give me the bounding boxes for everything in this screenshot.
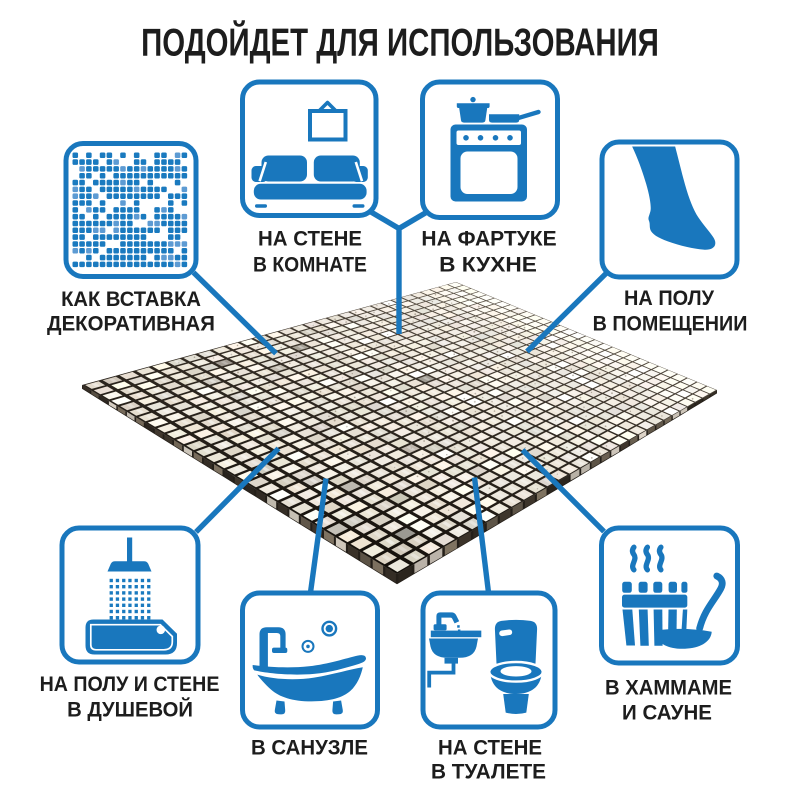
svg-text:НА СТЕНЕ: НА СТЕНЕ: [438, 736, 542, 759]
svg-text:ПОДОЙДЕТ ДЛЯ ИСПОЛЬЗОВАНИЯ: ПОДОЙДЕТ ДЛЯ ИСПОЛЬЗОВАНИЯ: [141, 19, 659, 64]
svg-text:В ХАММАМЕ: В ХАММАМЕ: [605, 676, 732, 699]
svg-text:ДЕКОРАТИВНАЯ: ДЕКОРАТИВНАЯ: [47, 312, 215, 335]
svg-text:В САНУЗЛЕ: В САНУЗЛЕ: [251, 736, 368, 759]
svg-text:В ТУАЛЕТЕ: В ТУАЛЕТЕ: [431, 760, 546, 783]
svg-text:В ДУШЕВОЙ: В ДУШЕВОЙ: [67, 697, 193, 721]
svg-text:В ПОМЕЩЕНИИ: В ПОМЕЩЕНИИ: [593, 313, 748, 336]
svg-text:НА СТЕНЕ: НА СТЕНЕ: [258, 227, 362, 250]
svg-text:НА ФАРТУКЕ: НА ФАРТУКЕ: [421, 228, 556, 251]
svg-text:НА ПОЛУ И СТЕНЕ: НА ПОЛУ И СТЕНЕ: [40, 673, 220, 696]
svg-text:НА ПОЛУ: НА ПОЛУ: [624, 287, 714, 311]
svg-text:КАК ВСТАВКА: КАК ВСТАВКА: [61, 288, 201, 311]
svg-text:В КУХНЕ: В КУХНЕ: [439, 252, 537, 276]
svg-text:В КОМНАТЕ: В КОМНАТЕ: [253, 254, 367, 277]
svg-text:И САУНЕ: И САУНЕ: [622, 701, 712, 724]
